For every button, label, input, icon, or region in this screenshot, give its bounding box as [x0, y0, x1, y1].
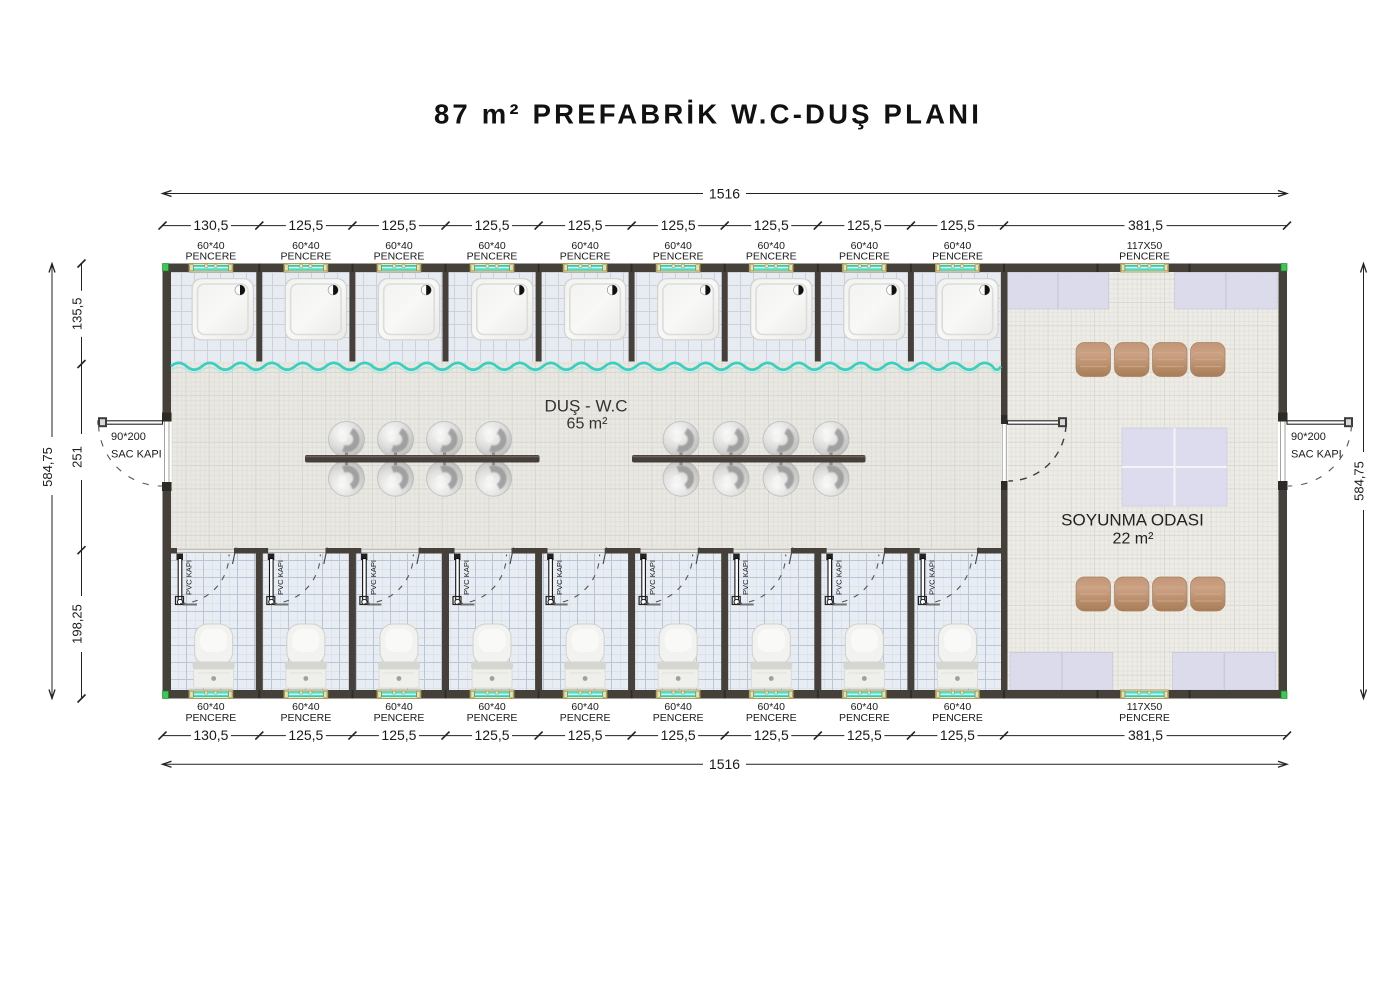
svg-text:PENCERE: PENCERE	[746, 712, 797, 724]
svg-text:PVC KAPI: PVC KAPI	[555, 560, 564, 595]
svg-text:125,5: 125,5	[288, 727, 323, 743]
svg-text:PENCERE: PENCERE	[932, 712, 983, 724]
svg-text:PENCERE: PENCERE	[653, 251, 704, 263]
svg-text:PENCERE: PENCERE	[1119, 251, 1170, 263]
svg-text:90*200: 90*200	[1291, 431, 1326, 443]
svg-text:1516: 1516	[709, 756, 740, 772]
svg-text:PVC KAPI: PVC KAPI	[462, 560, 471, 595]
svg-text:SOYUNMA ODASI: SOYUNMA ODASI	[1061, 511, 1204, 530]
svg-text:125,5: 125,5	[847, 727, 882, 743]
svg-text:PVC KAPI: PVC KAPI	[741, 560, 750, 595]
svg-text:584,75: 584,75	[40, 447, 55, 487]
svg-text:381,5: 381,5	[1128, 727, 1163, 743]
svg-text:130,5: 130,5	[193, 727, 228, 743]
svg-text:PENCERE: PENCERE	[374, 712, 425, 724]
svg-text:PENCERE: PENCERE	[467, 251, 518, 263]
svg-text:125,5: 125,5	[661, 217, 696, 233]
svg-text:125,5: 125,5	[568, 217, 603, 233]
svg-text:PVC KAPI: PVC KAPI	[369, 560, 378, 595]
svg-text:125,5: 125,5	[475, 217, 510, 233]
svg-text:PENCERE: PENCERE	[186, 712, 237, 724]
svg-text:PENCERE: PENCERE	[932, 251, 983, 263]
svg-text:PENCERE: PENCERE	[1119, 712, 1170, 724]
svg-text:PENCERE: PENCERE	[467, 712, 518, 724]
svg-text:PENCERE: PENCERE	[280, 251, 331, 263]
svg-text:125,5: 125,5	[847, 217, 882, 233]
svg-text:PENCERE: PENCERE	[374, 251, 425, 263]
svg-text:PVC KAPI: PVC KAPI	[834, 560, 843, 595]
svg-text:PENCERE: PENCERE	[746, 251, 797, 263]
svg-text:PVC KAPI: PVC KAPI	[185, 560, 194, 595]
svg-text:125,5: 125,5	[754, 727, 789, 743]
svg-text:SAC KAPI: SAC KAPI	[1291, 449, 1342, 461]
svg-text:PENCERE: PENCERE	[839, 251, 890, 263]
svg-text:PVC KAPI: PVC KAPI	[648, 560, 657, 595]
svg-text:125,5: 125,5	[940, 727, 975, 743]
svg-text:135,5: 135,5	[70, 298, 85, 331]
svg-text:125,5: 125,5	[754, 217, 789, 233]
svg-text:PENCERE: PENCERE	[839, 712, 890, 724]
svg-text:1516: 1516	[709, 185, 740, 201]
svg-text:PVC KAPI: PVC KAPI	[276, 560, 285, 595]
svg-text:87 m² PREFABRİK W.C-DUŞ PLANI: 87 m² PREFABRİK W.C-DUŞ PLANI	[434, 99, 982, 130]
svg-text:130,5: 130,5	[193, 217, 228, 233]
svg-text:125,5: 125,5	[381, 217, 416, 233]
svg-text:22 m²: 22 m²	[1113, 531, 1155, 548]
svg-text:PENCERE: PENCERE	[186, 251, 237, 263]
svg-text:251: 251	[70, 446, 85, 468]
svg-text:125,5: 125,5	[288, 217, 323, 233]
svg-text:125,5: 125,5	[661, 727, 696, 743]
svg-text:125,5: 125,5	[940, 217, 975, 233]
svg-text:SAC KAPI: SAC KAPI	[111, 449, 162, 461]
svg-text:125,5: 125,5	[381, 727, 416, 743]
svg-text:125,5: 125,5	[475, 727, 510, 743]
svg-text:PENCERE: PENCERE	[560, 712, 611, 724]
svg-text:65 m²: 65 m²	[567, 416, 609, 433]
svg-text:PVC KAPI: PVC KAPI	[927, 560, 936, 595]
svg-text:584,75: 584,75	[1352, 461, 1367, 501]
svg-text:125,5: 125,5	[568, 727, 603, 743]
svg-text:DUŞ - W.C: DUŞ - W.C	[544, 397, 627, 416]
svg-text:PENCERE: PENCERE	[560, 251, 611, 263]
svg-text:PENCERE: PENCERE	[653, 712, 704, 724]
svg-text:381,5: 381,5	[1128, 217, 1163, 233]
svg-text:PENCERE: PENCERE	[280, 712, 331, 724]
svg-text:90*200: 90*200	[111, 431, 146, 443]
svg-text:198,25: 198,25	[70, 604, 85, 644]
